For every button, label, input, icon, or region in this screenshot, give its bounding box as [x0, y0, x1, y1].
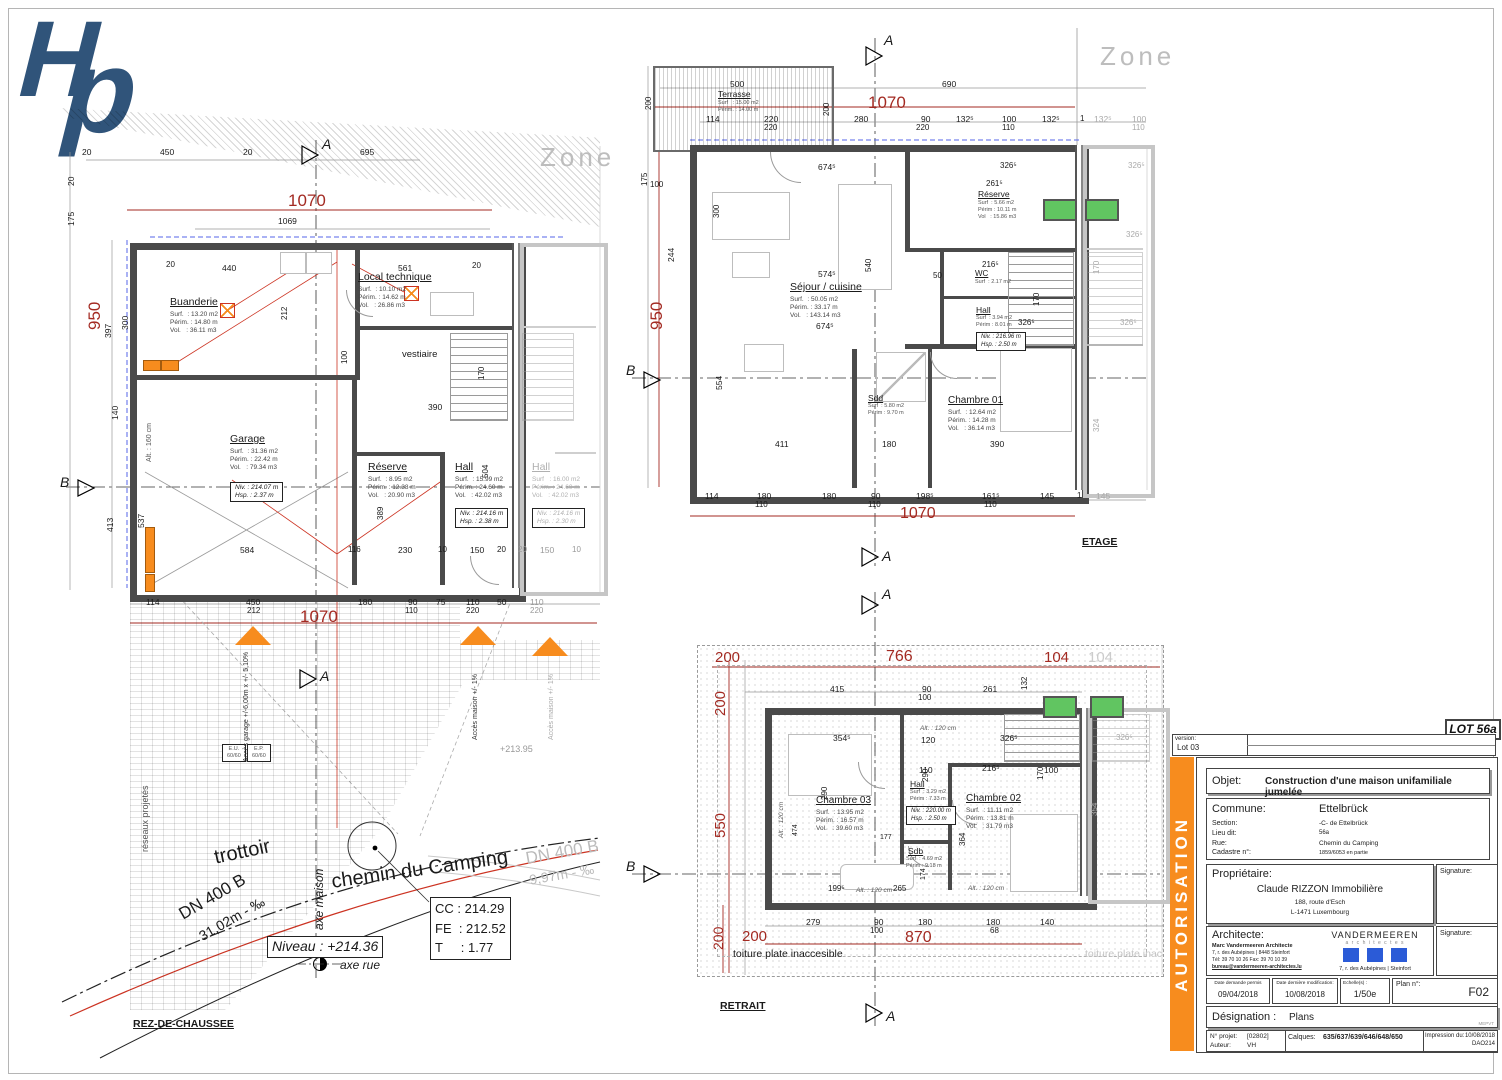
annotation: 411 — [775, 439, 789, 450]
annotation: 695 — [360, 147, 374, 158]
designation-label: Désignation : — [1212, 1011, 1276, 1023]
annotation: Niv. : 214.07 m Hsp. : 2.37 m — [230, 482, 283, 502]
annotation: 537 — [136, 514, 147, 528]
annotation: 177 — [880, 834, 892, 843]
annotation: Surf. : 13.20 m2 Périm. : 14.80 m Vol. :… — [170, 311, 218, 335]
annotation: 354 — [1090, 803, 1100, 816]
annotation: 180 — [918, 917, 932, 928]
annotation: Niv. : 214.16 m Hsp. : 2.38 m — [455, 508, 508, 528]
annotation: 100 — [870, 926, 883, 936]
annotation: 279 — [806, 917, 820, 928]
annotation: 390 — [428, 402, 442, 413]
date-permis-value: 09/04/2018 — [1207, 990, 1269, 999]
annotation: 220 — [530, 606, 543, 616]
annotation: A — [886, 1008, 895, 1026]
annotation: 170 — [1092, 261, 1102, 274]
annotation: 110 — [405, 606, 418, 616]
lieudit-label: Lieu dit: — [1212, 830, 1237, 837]
annotation: Surf : 15.00 m2 Périm. : 14.00 m — [718, 100, 759, 114]
annotation: axe maison — [312, 869, 327, 930]
annotation: 540 — [864, 259, 874, 272]
annotation: Chambre 02 — [966, 793, 1021, 806]
annotation: 766 — [886, 647, 913, 667]
cadastre-value: 1859/6053 en partie — [1319, 850, 1368, 856]
annotation: 114 — [705, 491, 719, 502]
annotation: Surf : 16.00 m2 Périm. : 24.60 m Vol. : … — [532, 476, 580, 500]
annotation: A — [882, 548, 891, 566]
annotation: 100 — [340, 351, 350, 364]
annotation: Séjour / cuisine — [790, 281, 862, 294]
annotation: 200 — [742, 928, 767, 947]
annotation: 132 — [1020, 677, 1030, 690]
annotation: 450 — [160, 147, 174, 158]
nproj-value: [02802] — [1247, 1033, 1269, 1040]
annotation: 212 — [280, 307, 290, 320]
annotation: 110 — [1002, 123, 1015, 133]
auteur-label: Auteur: — [1210, 1042, 1231, 1049]
objet-value: Construction d'une maison unifamiliale j… — [1265, 776, 1489, 798]
annotation: 474 — [792, 824, 801, 836]
annotation: 1070 — [868, 92, 906, 113]
annotation: 150 — [540, 545, 554, 556]
annotation: A — [322, 136, 331, 154]
annotation: Surf. : 11.11 m2 Périm. : 13.81 m Vol. :… — [966, 807, 1014, 831]
vandermeeren-logo-squares — [1319, 948, 1431, 964]
lieudit-value: 56a — [1319, 830, 1329, 836]
annotation: 326⁵ — [1116, 733, 1133, 743]
architecte-label: Architecte: — [1212, 929, 1264, 941]
cadastre-label: Cadastre n°: — [1212, 849, 1251, 856]
annotation: 674⁵ — [816, 321, 834, 332]
annotation: Niv. : 216.96 m Hsp. : 2.50 m — [976, 332, 1026, 351]
annotation: 170 — [1032, 293, 1042, 306]
annotation: Accès garage +/-6,00m x +/- 5,10% — [243, 652, 252, 762]
proprietaire-label: Propriétaire: — [1212, 868, 1272, 880]
annotation: réseaux projetés — [140, 785, 151, 852]
annotation: 150 — [470, 545, 484, 556]
commune-label: Commune: — [1212, 803, 1266, 815]
autorisation-banner: AUTORISATION — [1170, 757, 1194, 1051]
calques-label: Calques: — [1288, 1034, 1316, 1041]
signature-label-2: Signature: — [1440, 930, 1472, 937]
annotation: 198⁵ — [916, 491, 934, 502]
vandermeeren-logo-name: VANDERMEEREN — [1319, 930, 1431, 940]
annotation: 20 — [66, 177, 77, 186]
annotation: 20 — [166, 260, 175, 270]
plan-no-label: Plan n°: — [1396, 981, 1421, 988]
title-block: LOT 56a version: Lot 03 AUTORISATION Obj… — [1165, 715, 1502, 1075]
autorisation-text: AUTORISATION — [1172, 816, 1192, 992]
annotation: Réserve — [978, 189, 1010, 200]
annotation: 200 — [715, 649, 740, 668]
calques-value: 635/637/639/646/648/650 — [1323, 1034, 1403, 1041]
annotation: 440 — [222, 263, 236, 274]
annotation: 1070 — [300, 606, 338, 627]
annotation: 20 — [243, 147, 252, 158]
annotation: A — [884, 32, 893, 50]
annotation: 140 — [1040, 917, 1054, 928]
annotation: 220 — [916, 123, 929, 133]
annotation: 120 — [921, 735, 935, 746]
annotation: 110 — [755, 500, 768, 510]
annotation: 300 — [712, 205, 722, 218]
annotation: 397 — [103, 324, 114, 338]
annotation: 114 — [706, 114, 720, 125]
rue-label: Rue: — [1212, 840, 1227, 847]
annotation: Surf. : 15.99 m2 Périm. : 24.60 m Vol. :… — [455, 476, 503, 500]
annotation: 180 — [882, 439, 896, 450]
annotation: chemin du Camping — [330, 845, 510, 895]
annotation: 104 — [1044, 649, 1069, 668]
annotation: Zone — [540, 141, 615, 174]
annotation: CC : 214.29 FE : 212.52 T : 1.77 — [430, 897, 511, 960]
annotation: Surf. : 50.05 m2 Périm. : 33.17 m Vol. :… — [790, 296, 841, 320]
annotation: 100 — [1044, 765, 1058, 776]
annotation: 574⁵ — [818, 269, 836, 280]
annotation: REZ-DE-CHAUSSEE — [133, 1018, 234, 1031]
annotation: Niveau : +214.36 — [267, 936, 383, 958]
annotation: 1070 — [900, 504, 936, 524]
annotation: Niv. : 214.16 m Hsp. : 2.30 m — [532, 508, 585, 528]
annotation: Alt. : 120 cm — [856, 887, 892, 895]
annotation: Surf : 3.94 m2 Périm : 8.01 m — [976, 315, 1012, 329]
annotation: Surf : 5.66 m2 Périm : 10.11 m Vol : 15.… — [978, 200, 1016, 221]
annotation: Garage — [230, 433, 265, 446]
annotation: 110 — [868, 500, 881, 510]
annotation: axe rue — [340, 958, 380, 973]
annotation: Zone — [1100, 40, 1175, 73]
annotation: 870 — [905, 928, 932, 948]
annotation: 326⁵ — [1126, 230, 1143, 240]
rue-value: Chemin du Camping — [1319, 840, 1378, 847]
date-permis-label: Date demande permis — [1207, 981, 1269, 986]
signature-label-1: Signature: — [1440, 868, 1472, 875]
annotation: 550 — [712, 813, 731, 838]
annotation: 280 — [854, 114, 868, 125]
annotation: 114 — [146, 597, 160, 608]
annotation: WC — [975, 269, 988, 279]
vandermeeren-logo-addr: 7, r. des Aubépines | Steinfort — [1319, 966, 1431, 972]
date-modif-value: 10/08/2018 — [1273, 990, 1337, 999]
proprietaire-addr2: L-1471 Luxembourg — [1207, 909, 1433, 916]
annotation: 415 — [830, 684, 844, 695]
annotation: Accès maison +/- 1% — [472, 674, 481, 740]
designation-note: MEPVT — [1478, 1021, 1494, 1026]
annotation: 324 — [1092, 419, 1102, 432]
annotation: 244 — [666, 248, 677, 262]
annotation: 110 — [984, 500, 997, 510]
annotation: Alt. : 120 cm — [778, 802, 786, 838]
annotation: Chambre 03 — [816, 795, 871, 808]
annotation: 110 — [1132, 123, 1145, 133]
annotation: 950 — [646, 302, 667, 330]
annotation: Chambre 01 — [948, 395, 1003, 408]
annotation: toiture plate inac — [1085, 948, 1162, 961]
annotation: 389 — [376, 507, 386, 520]
plan-no-value: F02 — [1468, 985, 1489, 999]
echelle-value: 1/50e — [1341, 989, 1389, 999]
annotation: 104 — [1088, 649, 1113, 668]
annotation: 216⁵ — [982, 763, 1000, 774]
impression-value: 10/08/2018 — [1465, 1033, 1495, 1039]
annotation: 20 — [497, 545, 506, 555]
annotation: 180 — [358, 597, 372, 608]
annotation: 413 — [105, 518, 116, 532]
annotation: Alt. : 120 cm — [968, 885, 1004, 893]
annotation: 50 — [933, 271, 942, 281]
annotation: ETAGE — [1082, 536, 1117, 549]
annotation: 20 — [472, 261, 481, 271]
designation-value: Plans — [1289, 1012, 1314, 1023]
annotation: 132⁵ — [1042, 114, 1060, 125]
annotation: 174 — [920, 868, 929, 880]
annotation: 175 — [66, 212, 77, 226]
annotation: 199⁵ — [828, 884, 845, 894]
annotation: 10 — [438, 545, 447, 555]
nproj-label: N° projet: — [1210, 1033, 1237, 1040]
annotation: 674⁵ — [818, 162, 836, 173]
annotation: 116 — [348, 545, 361, 555]
annotation: Accès maison +/- 1% — [548, 674, 557, 740]
annotation: A — [320, 668, 329, 686]
annotation: 261 — [983, 684, 997, 695]
date-modif-label: Date dernière modification: — [1273, 981, 1337, 986]
annotation: 140 — [110, 406, 121, 420]
annotation: 220 — [466, 606, 479, 616]
annotation: 20 — [82, 147, 91, 158]
annotation: 554 — [714, 376, 725, 390]
annotation: 230 — [398, 545, 412, 556]
annotation: 132⁵ — [956, 114, 974, 125]
annotation: vestiaire — [402, 349, 437, 361]
annotation: 265 — [893, 884, 906, 894]
annotation: 200 — [710, 927, 728, 950]
annotation: B — [60, 474, 69, 492]
annotation: 326⁵ — [1128, 161, 1145, 171]
annotation: 364 — [958, 833, 968, 846]
vandermeeren-logo-sub: a r c h i t e c t e s — [1319, 940, 1431, 946]
annotation: 300 — [120, 316, 131, 330]
annotation: 100 — [918, 693, 931, 703]
annotation: Alt. : 120 cm — [920, 725, 956, 733]
annotation: Surf. : 13.95 m2 Périm. : 16.57 m Vol. :… — [816, 809, 864, 833]
commune-value: Ettelbrück — [1319, 803, 1368, 815]
annotation: 326⁵ — [1000, 733, 1018, 744]
annotation: 326⁵ — [1000, 161, 1017, 171]
annotation: 200 — [712, 691, 731, 716]
annotation: Surf : 3.29 m2 Périm : 7.33 m — [910, 789, 946, 803]
annotation: Surf. : 31.36 m2 Périm. : 22.42 m Vol. :… — [230, 448, 278, 472]
annotation: Niv. : 220.00 m Hsp. : 2.50 m — [906, 806, 956, 825]
annotation: 200 — [822, 103, 832, 116]
annotation: 180 — [822, 491, 836, 502]
architecte-name: Marc Vandermeeren Architecte — [1212, 943, 1293, 949]
annotation: +213.95 — [500, 744, 533, 755]
annotation: Surf : 5.80 m2 Périm : 9.70 m — [868, 403, 904, 417]
impression-label: Impression du: — [1425, 1033, 1464, 1039]
annotation: 75 — [436, 597, 445, 608]
title-block-main: Objet: Construction d'une maison unifami… — [1196, 757, 1498, 1053]
annotation: Réserve — [368, 461, 407, 474]
annotation: 690 — [942, 79, 956, 90]
annotation: 1 — [1080, 114, 1084, 124]
annotation: RETRAIT — [720, 1000, 766, 1013]
annotation: 326⁵ — [1120, 318, 1137, 328]
annotation: Surf. : 12.64 m2 Périm. : 14.28 m Vol. :… — [948, 409, 996, 433]
annotation: 1069 — [278, 216, 297, 227]
proprietaire-name: Claude RIZZON Immobilière — [1207, 884, 1433, 895]
annotation: Hall — [455, 461, 473, 474]
annotation: A — [882, 586, 891, 604]
architecte-mail: bureau@vandermeeren-architectes.lu — [1212, 964, 1302, 970]
annotation: 145 — [1040, 491, 1054, 502]
annotation: 100 — [650, 180, 663, 190]
annotation: 326⁵ — [1018, 318, 1035, 328]
annotation: Local technique — [358, 271, 432, 284]
architecte-addr: 7, r. des Aubépines | 8448 Steinfort — [1212, 950, 1290, 956]
annotation: Terrasse — [718, 89, 751, 100]
annotation: trottoir — [212, 834, 273, 870]
annotation: 390 — [990, 439, 1004, 450]
annotation: 1 — [1077, 491, 1081, 501]
annotation: Alt. : 160 cm — [146, 423, 155, 462]
annotation: 145 — [1096, 491, 1110, 502]
drawing-sheet: H p — [0, 0, 1502, 1080]
annotation: 1070 — [288, 190, 326, 211]
annotation: 10 — [572, 545, 581, 555]
annotation: 200 — [644, 97, 654, 110]
annotation: Surf. : 10.10 m2 Périm. : 14.62 m Vol. :… — [358, 286, 406, 310]
annotation: 212 — [247, 606, 260, 616]
annotation: 50 — [497, 597, 506, 608]
objet-label: Objet: — [1212, 775, 1241, 787]
auteur-value: VH — [1247, 1042, 1256, 1049]
annotation: 261⁵ — [986, 179, 1003, 189]
annotation: 584 — [240, 545, 254, 556]
annotation: Hall — [532, 461, 550, 474]
annotation: 216⁵ — [982, 260, 999, 270]
annotation: 170 — [477, 367, 487, 380]
annotation: 132⁵ — [1094, 114, 1112, 125]
annotation: B — [626, 858, 635, 876]
annotation: 20 — [518, 545, 527, 555]
annotation: Buanderie — [170, 296, 218, 309]
version-value: Lot 03 — [1177, 743, 1199, 752]
annotation: 170 — [1036, 767, 1046, 780]
annotation: 220 — [764, 123, 777, 133]
annotation: toiture plate inaccesible — [733, 948, 843, 961]
annotation: B — [626, 362, 635, 380]
impression-ref: DAO214 — [1472, 1041, 1495, 1047]
annotation: Surf. : 8.95 m2 Périm. : 12.38 m Vol. : … — [368, 476, 416, 500]
section-value: -C- de Ettelbrück — [1319, 820, 1368, 827]
echelle-label: Echelle(s) : — [1343, 981, 1367, 986]
annotation: 354⁵ — [833, 733, 851, 744]
annotation: Surf : 2.17 m2 — [975, 279, 1011, 286]
annotation: 175 — [640, 173, 650, 186]
version-table: version: Lot 03 — [1172, 734, 1496, 756]
architecte-tel: Tél: 39 70 10 26 Fax: 39 70 10 39 — [1212, 957, 1287, 963]
proprietaire-addr1: 188, route d'Esch — [1207, 899, 1433, 906]
version-label: version: — [1175, 736, 1196, 742]
annotation: 68 — [990, 926, 999, 936]
section-label: Section: — [1212, 820, 1237, 827]
